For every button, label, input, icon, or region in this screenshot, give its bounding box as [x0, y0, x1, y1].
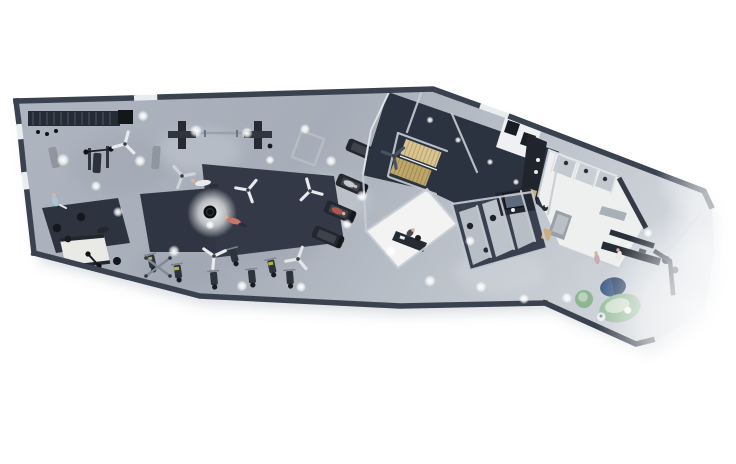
shower-head: [584, 169, 588, 173]
gym-floor-plan-render: [0, 0, 736, 464]
stall-chair: [467, 223, 473, 229]
slam-ball: [53, 224, 61, 232]
weight-plate: [204, 206, 217, 219]
green-pouf: [575, 290, 593, 308]
office-chair: [415, 235, 421, 241]
weight-bench: [151, 146, 161, 170]
render-canvas: [0, 0, 736, 464]
shower-head: [603, 177, 607, 181]
stall-chair: [490, 215, 496, 221]
slam-ball: [65, 236, 72, 243]
slam-ball: [77, 213, 85, 221]
shower-head: [564, 161, 568, 165]
